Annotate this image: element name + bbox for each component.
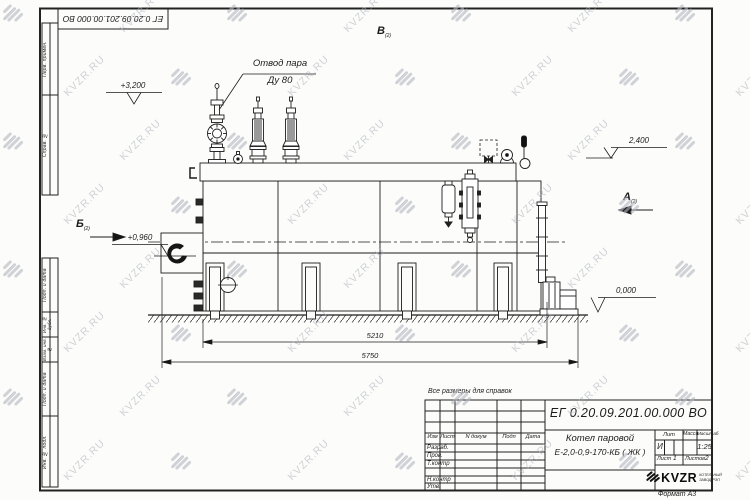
view-letter-v: В [377,25,385,37]
kvzr-logo: KVZR КОТЕЛЬНЫЙ ЗАВОД РЭП [656,466,712,489]
elevation-top-left: +3,200 [106,82,160,90]
corner-designation: ЕГ 0.20.09.201.00.000 ВО [58,9,168,29]
side-label-podp-data-2: Подп. и дата [42,362,50,416]
deck-drain-valve [234,152,243,164]
side-label-vzam-inv: Взам. инв. № [42,337,50,362]
product-name-line1: Котел паровой [545,434,655,444]
mass-label: Масса [683,432,697,437]
drawing-sheet: ЕГ 0.20.09.201.00.000 ВО Перв. примен. С… [0,0,750,500]
view-ref-b: (2) [84,226,90,232]
product-name-line2: Е-2,0-0,9-170-КБ ( ЖК ) [545,448,655,457]
side-label-inv-dubl: Инв. № дубл. [42,312,50,337]
dimension-5750: 5750 [340,352,400,360]
col-data: Дата [521,435,545,441]
side-label-podp-data-1: Подп. и дата [42,258,50,312]
sheets-label: Листов [685,457,705,463]
kvzr-logo-subtext: КОТЕЛЬНЫЙ ЗАВОД РЭП [699,473,722,482]
scale-value: 1:25 [697,443,712,451]
side-label-sprav-no: Справ. № [42,95,50,195]
siphon-loop [520,159,530,169]
sheet-value: 1 [673,456,677,463]
safety-valves [250,97,299,163]
col-podp: Подп [497,435,521,441]
row-razrab: Разраб. [427,445,449,451]
side-label-perv-primen: Перв. примен. [42,23,50,95]
col-list: Лист [440,435,455,441]
elevation-top-right: 2,400 [612,137,666,145]
view-letter-b: Б [76,218,84,230]
lit-value: И [655,443,665,451]
boiler-assembly-drawing [0,0,750,500]
view-label-v: В(2) [377,26,391,39]
side-label-inv-podl: Инв. № подл. [42,416,50,487]
lifting-lug [190,168,197,178]
scale-label: Масштаб [697,432,712,437]
row-utv: Утв. [427,484,441,490]
view-label-b: Б(2) [76,219,90,232]
row-tkontr: Т.контр [427,461,450,467]
kvzr-logo-text: KVZR [661,471,697,485]
row-nkontr: Н.контр [427,477,451,483]
steam-callout-line1: Отвод пара [245,59,315,69]
pump-unit [540,277,578,315]
sheets-value: 2 [705,456,709,463]
lit-label: Лит [655,432,683,438]
row-prov: Пров. [427,453,443,459]
col-izm: Изм [425,435,440,441]
titleblock-designation: ЕГ 0.20.09.201.00.000 ВО [545,407,712,420]
elevation-ground: 0,000 [598,287,654,295]
elevation-mid-left: +0,960 [112,234,168,242]
view-ref-v: (2) [385,33,391,39]
thermometer [522,136,527,147]
format-label: Формат А3 [645,491,709,498]
reference-note: Все размеры для справок [428,388,512,395]
view-label-a: А(2) [623,192,637,205]
steam-callout-line2: Ду 80 [245,76,315,86]
view-ref-a: (2) [631,199,637,205]
kvzr-logo-sub2: ЗАВОД РЭП [699,478,722,482]
dimension-5210: 5210 [345,332,405,340]
col-ndokum: N докум [455,435,497,441]
sheet-label: Лист [657,457,671,463]
steam-outlet-valve [208,84,227,164]
view-letter-a: А [623,191,631,203]
